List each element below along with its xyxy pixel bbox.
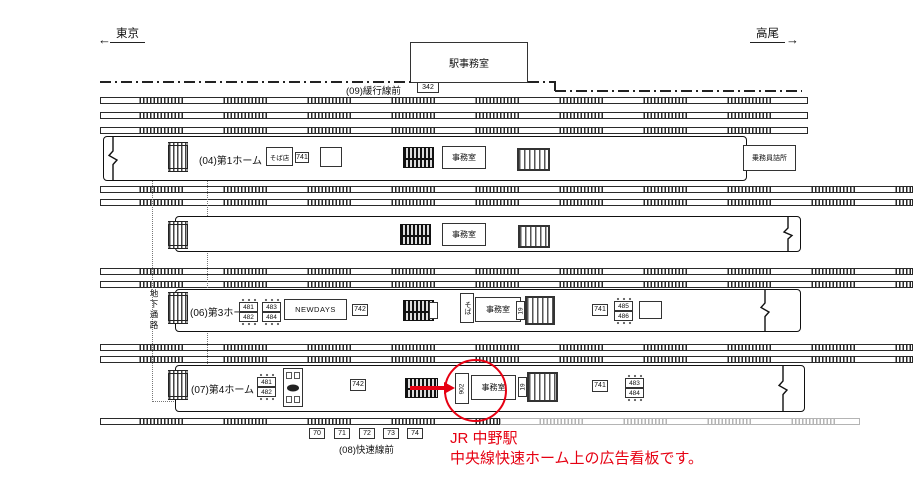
empty-box xyxy=(320,147,342,167)
bench-number: 482 xyxy=(239,312,258,322)
track-line xyxy=(100,418,500,425)
billboard-tag-741: 741 xyxy=(295,152,309,163)
office-label: 事務室 xyxy=(452,229,476,240)
track-line xyxy=(100,281,913,288)
escalator-icon xyxy=(517,148,550,171)
bench-number: 484 xyxy=(625,388,644,398)
kiosk-box: NEWDAYS xyxy=(284,299,347,320)
bench-number: 481 xyxy=(239,302,258,312)
platform-1-label: (04)第1ホーム xyxy=(199,152,262,167)
small-box xyxy=(429,302,438,319)
direction-tokyo: ← 東京 xyxy=(110,25,145,43)
billboard-tag-342: 342 xyxy=(417,82,439,93)
office-box: 事務室 xyxy=(475,297,521,322)
stairs-icon xyxy=(400,224,431,245)
escalator-icon xyxy=(525,296,555,325)
bench-number: 481 xyxy=(257,377,276,387)
office-label: 事務室 xyxy=(486,304,510,315)
soba-shop-label: そば店 xyxy=(270,152,290,162)
seat-dots xyxy=(257,397,276,401)
track-line xyxy=(100,268,913,275)
stairs-icon xyxy=(403,147,434,168)
track-line xyxy=(100,112,808,119)
billboard-tag-742: 742 xyxy=(352,304,368,316)
seat-dots xyxy=(625,398,644,402)
billboard-tag-71: 71 xyxy=(334,428,350,439)
billboard-tag-741: 741 xyxy=(592,380,608,392)
track-line xyxy=(100,127,808,134)
empty-box xyxy=(639,301,662,319)
stair-number-tag: 19 xyxy=(518,377,527,397)
bench-481-482: 481 482 xyxy=(239,298,258,326)
bench-number: 486 xyxy=(614,311,633,321)
escalator-icon xyxy=(518,225,550,248)
direction-takao-label: 高尾 xyxy=(750,25,785,43)
facility-icon xyxy=(286,396,292,403)
bench-number: 485 xyxy=(614,301,633,311)
seat-dots xyxy=(614,321,633,325)
facility-icon xyxy=(294,396,300,403)
billboard-tag-742: 742 xyxy=(350,379,366,391)
annotation-description: 中央線快速ホーム上の広告看板です。 xyxy=(450,447,703,468)
red-arrow-shaft xyxy=(410,386,446,390)
track-line-gray xyxy=(500,418,860,425)
platform-2 xyxy=(175,216,801,252)
office-box: 事務室 xyxy=(442,146,486,169)
boundary-line xyxy=(528,81,556,83)
bench-483-484: 483 484 xyxy=(625,374,644,402)
stairs-icon xyxy=(168,221,188,249)
billboard-tag-74: 74 xyxy=(407,428,423,439)
underground-passage-label: 地下通路 xyxy=(148,289,160,337)
bench-483-484: 483 484 xyxy=(262,298,281,326)
seat-dots xyxy=(239,322,258,326)
office-label: 事務室 xyxy=(452,152,476,163)
kiosk-label: NEWDAYS xyxy=(295,305,336,314)
elevator-icon xyxy=(287,384,299,391)
crew-office-box: 乗務員詰所 xyxy=(743,145,796,171)
office-box: 事務室 xyxy=(442,223,486,246)
direction-tokyo-label: 東京 xyxy=(110,25,145,43)
bench-number: 483 xyxy=(262,302,281,312)
bench-number: 483 xyxy=(625,378,644,388)
row08-label: (08)快速線前 xyxy=(339,442,394,456)
billboard-tag-73: 73 xyxy=(383,428,399,439)
soba-shop-box: そば店 xyxy=(266,147,293,166)
bench-481-482: 481 482 xyxy=(257,373,276,401)
crew-office-label: 乗務員詰所 xyxy=(752,153,787,163)
billboard-tag-741: 741 xyxy=(592,304,608,316)
bench-485-486: 485 486 xyxy=(614,297,633,325)
track-line xyxy=(100,344,913,351)
right-arrow-icon: → xyxy=(786,32,799,47)
left-arrow-icon: ← xyxy=(98,32,111,47)
direction-takao: 高尾 → xyxy=(750,25,785,43)
platform-4-label: (07)第4ホーム xyxy=(191,381,254,396)
break-mark-icon xyxy=(777,366,789,411)
passage-dotted-line xyxy=(152,142,153,402)
stairs-icon xyxy=(168,292,188,324)
annotation-station-name: JR 中野駅 xyxy=(450,427,518,448)
stair-number-tag: 19 xyxy=(516,301,525,320)
track-line xyxy=(100,97,808,104)
escalator-icon xyxy=(527,372,558,402)
break-mark-icon xyxy=(782,217,794,252)
row09-label: (09)緩行線前 xyxy=(346,83,401,97)
facility-icon xyxy=(286,372,292,379)
soba-stand-box: そば xyxy=(460,293,474,323)
highlight-circle xyxy=(444,359,507,422)
bench-number: 484 xyxy=(262,312,281,322)
billboard-tag-70: 70 xyxy=(309,428,325,439)
bench-number: 482 xyxy=(257,387,276,397)
stairs-icon xyxy=(168,142,188,172)
seat-dots xyxy=(262,322,281,326)
track-line xyxy=(100,356,913,363)
facility-icon xyxy=(294,372,300,379)
boundary-line xyxy=(555,90,802,92)
break-mark-icon xyxy=(759,290,771,331)
facility-icons-box xyxy=(283,368,303,407)
station-diagram: ← 東京 高尾 → 駅事務室 342 (09)緩行線前 地下通路 (04)第1ホ… xyxy=(0,0,919,491)
track-line xyxy=(100,199,913,206)
break-mark-icon xyxy=(107,137,119,181)
station-office-box: 駅事務室 xyxy=(410,42,528,83)
billboard-tag-72: 72 xyxy=(359,428,375,439)
stairs-icon xyxy=(168,370,188,400)
station-office-label: 駅事務室 xyxy=(449,55,489,70)
track-line xyxy=(100,186,913,193)
